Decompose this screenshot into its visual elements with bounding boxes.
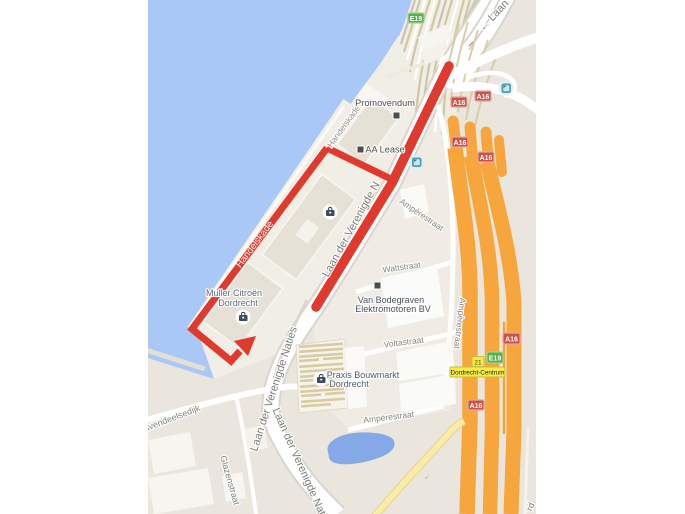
svg-text:E19: E19 [489, 356, 502, 363]
svg-text:A16: A16 [477, 94, 490, 101]
svg-text:Dordrecht: Dordrecht [329, 379, 369, 389]
svg-text:Elektromotoren BV: Elektromotoren BV [355, 304, 431, 314]
svg-text:E19: E19 [410, 16, 423, 23]
svg-text:Muller Citroën: Muller Citroën [206, 288, 262, 298]
svg-text:AA Lease: AA Lease [365, 145, 404, 155]
svg-text:A16: A16 [505, 337, 518, 344]
svg-text:Promovendum: Promovendum [355, 98, 415, 108]
svg-text:A16: A16 [470, 403, 483, 410]
svg-text:A16: A16 [454, 140, 467, 147]
svg-text:A16: A16 [453, 100, 466, 107]
svg-text:Dordrecht: Dordrecht [218, 298, 258, 308]
svg-text:A16: A16 [480, 155, 493, 162]
svg-text:21: 21 [474, 360, 482, 367]
svg-text:Dordrecht-Centrum: Dordrecht-Centrum [451, 370, 505, 377]
